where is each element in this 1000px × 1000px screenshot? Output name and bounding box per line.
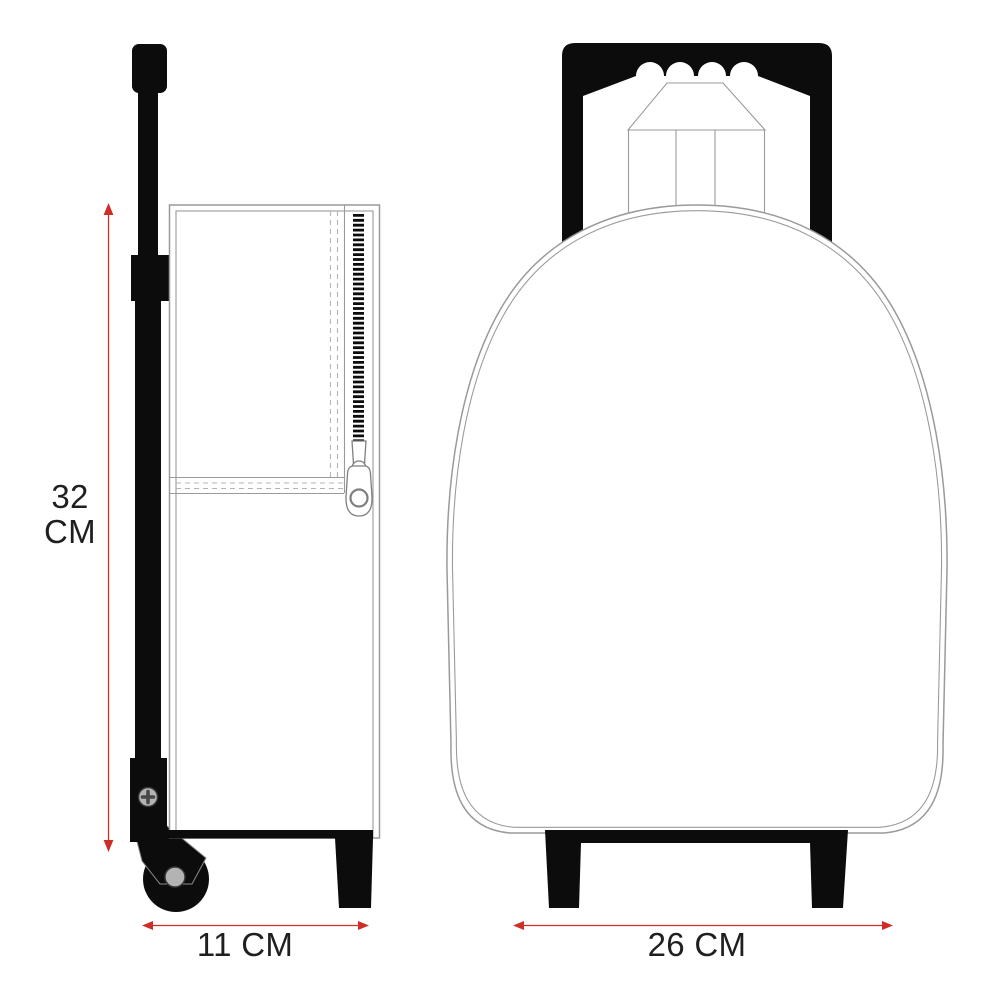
arrow-right-icon xyxy=(358,921,369,930)
side-view-figure xyxy=(130,44,380,912)
diagram-canvas: 32 CM 11 CM 26 CM xyxy=(0,0,1000,1000)
handle-joint xyxy=(131,255,170,301)
handle-upper-pole xyxy=(138,90,158,260)
arrow-down-icon xyxy=(104,840,114,852)
arrow-right-icon xyxy=(882,921,893,930)
base-bar xyxy=(131,830,373,839)
zipper-pull-hole xyxy=(351,490,368,507)
arrow-up-icon xyxy=(104,203,114,215)
handle-lower-pole xyxy=(135,298,161,766)
arrow-left-icon xyxy=(513,921,524,930)
trolley-backpack-diagram xyxy=(0,0,1000,1000)
front-view-figure xyxy=(447,43,947,908)
front-body-outline xyxy=(447,205,947,833)
wheel-hub xyxy=(165,867,185,887)
height-value: 32 xyxy=(38,479,102,514)
height-unit: CM xyxy=(38,514,102,549)
wheel-base xyxy=(545,830,848,908)
height-label: 32 CM xyxy=(38,479,102,549)
side-body-outline xyxy=(170,205,380,838)
rear-leg xyxy=(335,838,373,908)
depth-label: 11 CM xyxy=(145,927,345,962)
handle-grip xyxy=(132,44,167,93)
width-label: 26 CM xyxy=(597,927,797,962)
height-dimension-line xyxy=(104,203,114,852)
